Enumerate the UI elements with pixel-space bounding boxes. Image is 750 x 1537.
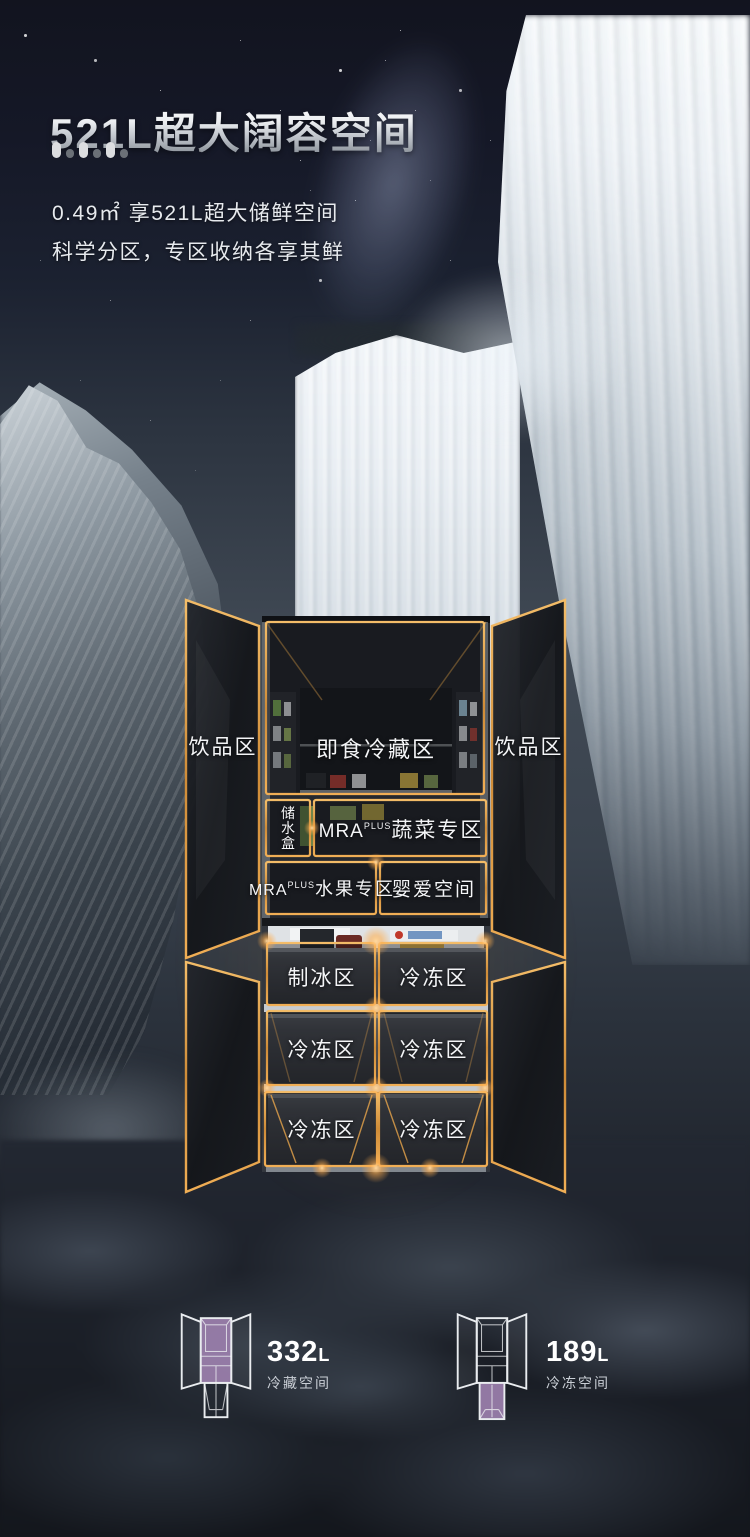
zone-label-baby: 婴爱空间 [392, 875, 476, 902]
subtitle-line-2: 科学分区，专区收纳各享其鲜 [52, 236, 345, 266]
subtitle-line-1: 0.49㎡ 享521L超大储鲜空间 [52, 197, 339, 227]
stat-cold-space: 332L 冷藏空间 [267, 1338, 331, 1393]
mra-plus-superscript: PLUS [364, 821, 392, 831]
mra-brand: MRA [249, 882, 288, 899]
zone-label-fruit: MRAPLUS水果专区 [249, 875, 395, 901]
stat-freezer-space: 189L 冷冻空间 [546, 1338, 610, 1393]
waterfall-mist [395, 270, 625, 440]
stat-cold-unit: L [318, 1345, 330, 1365]
stars [0, 0, 1, 1]
zone-label-ice: 制冰区 [288, 962, 357, 992]
mra-brand: MRA [319, 821, 364, 842]
fruit-zone-text: 水果专区 [315, 879, 395, 899]
zone-label-water-box: 储水盒 [278, 806, 298, 851]
zone-label-freezer-4: 冷冻区 [288, 1114, 357, 1144]
veg-zone-text: 蔬菜专区 [391, 819, 483, 842]
warm-glow [176, 700, 576, 1220]
zone-label-freezer-5: 冷冻区 [400, 1114, 469, 1144]
stat-cold-label: 冷藏空间 [267, 1373, 331, 1393]
fridge-bottom-highlight-icon [452, 1300, 532, 1422]
zone-label-freezer-3: 冷冻区 [400, 1034, 469, 1064]
door-label-left: 饮品区 [189, 731, 258, 761]
poster-root: 521L超大阔容空间 0.49㎡ 享521L超大储鲜空间 科学分区，专区收纳各享… [0, 0, 750, 1537]
deco-dots [52, 142, 128, 158]
zone-label-chilled: 即食冷藏区 [316, 732, 436, 764]
door-label-right: 饮品区 [495, 731, 564, 761]
stat-freezer-label: 冷冻空间 [546, 1373, 610, 1393]
zone-label-vegetable: MRAPLUS蔬菜专区 [319, 814, 484, 844]
zone-label-freezer-1: 冷冻区 [400, 962, 469, 992]
mra-plus-superscript: PLUS [288, 880, 316, 890]
zone-label-freezer-2: 冷冻区 [288, 1034, 357, 1064]
stat-freezer-value: 189 [546, 1336, 597, 1368]
stat-freezer-unit: L [597, 1345, 609, 1365]
stat-cold-value: 332 [267, 1336, 318, 1368]
fridge-top-highlight-icon [176, 1300, 256, 1422]
